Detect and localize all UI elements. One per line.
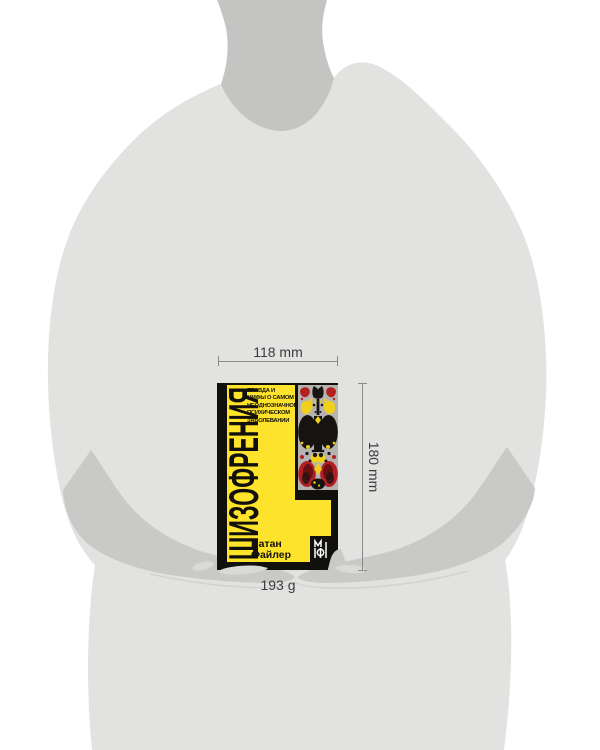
- weight-label: 193 g: [218, 577, 338, 593]
- subtitle-line: ПСИХИЧЕСКОМ: [247, 410, 297, 417]
- mif-monogram-icon: [310, 536, 331, 562]
- width-dimension-line: [218, 361, 338, 362]
- book-subtitle: ПРАВДА И МИФЫ О САМОМ НЕОДНОЗНАЧНОМ ПСИХ…: [247, 388, 297, 425]
- height-dimension-line: [362, 383, 363, 571]
- person-silhouette: [0, 0, 600, 750]
- subtitle-line: НЕОДНОЗНАЧНОМ: [247, 403, 297, 410]
- inkblot-strip: [298, 385, 338, 490]
- book-cover: ШИЗОФРЕНИЯ ПРАВДА И МИФЫ О САМОМ НЕОДНОЗ…: [217, 383, 338, 570]
- subtitle-line: ПРАВДА И: [247, 388, 297, 395]
- product-dimensions-illustration: ШИЗОФРЕНИЯ ПРАВДА И МИФЫ О САМОМ НЕОДНОЗ…: [0, 0, 600, 750]
- book-author: Натан Файлер: [251, 539, 291, 561]
- cover-bottom-border: [217, 562, 338, 570]
- publisher-logo: [310, 536, 331, 562]
- width-label: 118 mm: [218, 344, 338, 360]
- height-tick-top: [358, 383, 367, 384]
- cover-right-border: [331, 490, 338, 570]
- height-label: 180 mm: [366, 442, 382, 493]
- subtitle-line: ЗАБОЛЕВАНИИ: [247, 418, 297, 425]
- rorschach-inkblots-icon: [298, 385, 338, 490]
- height-tick-bottom: [358, 570, 367, 571]
- subtitle-line: МИФЫ О САМОМ: [247, 395, 297, 402]
- author-line: Файлер: [251, 550, 291, 561]
